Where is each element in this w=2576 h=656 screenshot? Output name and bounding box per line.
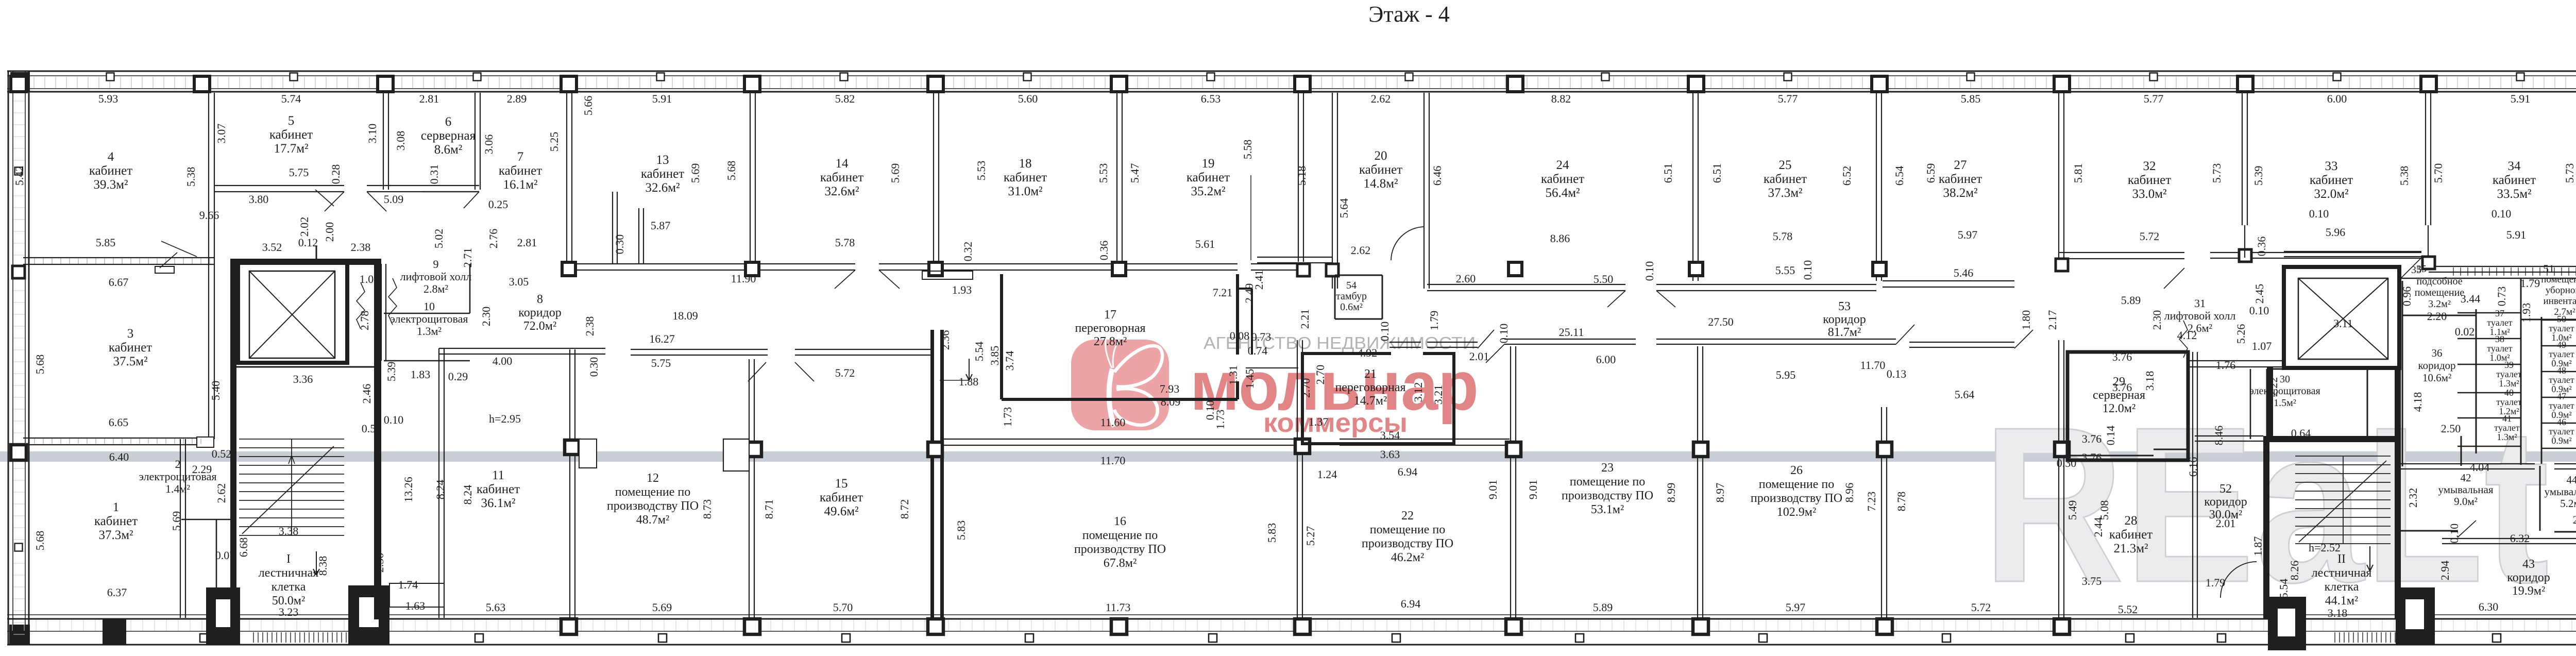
svg-text:5.39: 5.39 <box>385 362 398 382</box>
svg-text:1.3м²: 1.3м² <box>2499 378 2519 389</box>
svg-text:кабинет: кабинет <box>2310 173 2353 187</box>
svg-text:0.9м²: 0.9м² <box>2551 435 2571 446</box>
svg-text:22: 22 <box>1401 509 1414 523</box>
svg-text:клетка: клетка <box>272 580 306 594</box>
svg-text:8.38: 8.38 <box>316 556 329 576</box>
svg-text:1.88: 1.88 <box>959 375 979 388</box>
svg-text:0.96: 0.96 <box>2400 287 2413 307</box>
svg-text:5.77: 5.77 <box>2144 92 2164 105</box>
svg-text:1.73: 1.73 <box>1001 407 1014 427</box>
svg-text:7.21: 7.21 <box>1213 286 1233 299</box>
svg-text:2.17: 2.17 <box>2046 310 2059 330</box>
svg-text:3.2м²: 3.2м² <box>2428 298 2451 310</box>
svg-text:6.54: 6.54 <box>1893 166 1906 186</box>
svg-text:5.55: 5.55 <box>1775 264 1795 277</box>
svg-text:1.79: 1.79 <box>1428 311 1440 331</box>
svg-text:0.51: 0.51 <box>362 422 382 435</box>
svg-text:1.80: 1.80 <box>2020 310 2032 330</box>
svg-text:2.78: 2.78 <box>358 311 371 331</box>
svg-text:37.3м²: 37.3м² <box>98 528 133 542</box>
svg-text:27: 27 <box>1954 158 1967 172</box>
svg-text:кабинет: кабинет <box>820 491 863 504</box>
svg-text:2.30: 2.30 <box>2150 310 2163 330</box>
svg-text:6.00: 6.00 <box>2327 92 2347 105</box>
svg-text:клетка: клетка <box>2325 580 2359 594</box>
svg-text:6.40: 6.40 <box>109 450 129 463</box>
svg-text:33: 33 <box>2325 159 2338 173</box>
svg-text:24: 24 <box>1556 158 1570 172</box>
svg-text:5.69: 5.69 <box>170 511 183 531</box>
svg-text:8.97: 8.97 <box>1714 483 1726 503</box>
svg-text:4.92: 4.92 <box>1358 346 1378 359</box>
svg-text:кабинет: кабинет <box>109 341 152 355</box>
svg-text:2.45: 2.45 <box>2253 284 2266 304</box>
svg-text:лифтовой холл: лифтовой холл <box>400 270 472 283</box>
svg-text:3.12: 3.12 <box>1412 382 1425 402</box>
svg-text:2.81: 2.81 <box>419 92 439 105</box>
svg-text:46: 46 <box>2557 417 2566 427</box>
svg-text:5.02: 5.02 <box>432 229 445 249</box>
svg-text:10: 10 <box>423 300 435 313</box>
svg-text:4: 4 <box>108 150 114 164</box>
svg-text:8.6м²: 8.6м² <box>434 143 463 157</box>
svg-text:0.10: 0.10 <box>2309 207 2329 220</box>
svg-text:2.29: 2.29 <box>192 463 212 476</box>
svg-text:5.53: 5.53 <box>975 161 988 181</box>
svg-text:6.16: 6.16 <box>2187 457 2199 477</box>
svg-text:5.64: 5.64 <box>1955 388 1975 401</box>
svg-text:подсобное: подсобное <box>2416 276 2462 287</box>
svg-text:2.20: 2.20 <box>2427 310 2447 323</box>
svg-text:1.02: 1.02 <box>360 273 380 285</box>
svg-text:3.52: 3.52 <box>262 241 282 254</box>
svg-text:уборного: уборного <box>2546 285 2576 296</box>
svg-text:0.10: 0.10 <box>1497 324 1510 344</box>
svg-text:26: 26 <box>1790 464 1803 477</box>
svg-text:0.32: 0.32 <box>961 242 974 262</box>
svg-text:5.91: 5.91 <box>652 92 672 105</box>
svg-text:0.10: 0.10 <box>2492 207 2512 220</box>
svg-text:11.70: 11.70 <box>1100 454 1126 467</box>
svg-text:33.0м²: 33.0м² <box>2132 187 2166 201</box>
svg-text:умывальная: умывальная <box>2544 485 2576 498</box>
svg-text:лестничная: лестничная <box>259 566 319 580</box>
svg-text:6.52: 6.52 <box>1840 166 1853 186</box>
svg-text:туалет: туалет <box>2549 375 2574 385</box>
svg-text:3.11: 3.11 <box>2333 317 2353 330</box>
svg-text:кабинет: кабинет <box>641 167 684 181</box>
svg-text:2.38: 2.38 <box>583 316 596 337</box>
svg-text:5.95: 5.95 <box>1776 368 1796 381</box>
svg-text:6.59: 6.59 <box>1924 163 1937 183</box>
svg-text:8.24: 8.24 <box>461 485 474 505</box>
svg-text:помещение по: помещение по <box>1370 523 1446 536</box>
svg-text:3.85: 3.85 <box>988 346 1001 366</box>
svg-text:11: 11 <box>492 468 504 482</box>
svg-text:20: 20 <box>1375 149 1387 163</box>
svg-text:53.1м²: 53.1м² <box>1591 503 1624 516</box>
svg-text:туалет: туалет <box>2496 397 2522 407</box>
svg-text:5.70: 5.70 <box>833 601 853 614</box>
svg-text:3.06: 3.06 <box>482 134 495 155</box>
svg-text:туалет: туалет <box>2487 343 2513 354</box>
svg-text:переговорная: переговорная <box>1075 322 1145 335</box>
svg-text:I: I <box>286 552 291 566</box>
svg-text:5.54: 5.54 <box>973 342 986 362</box>
svg-text:3.36: 3.36 <box>293 373 313 385</box>
svg-text:10.6м²: 10.6м² <box>2422 372 2451 384</box>
svg-text:0.31: 0.31 <box>428 164 440 184</box>
svg-text:6.51: 6.51 <box>1662 163 1674 183</box>
svg-text:2.01: 2.01 <box>2216 517 2236 530</box>
svg-text:11.90: 11.90 <box>731 272 756 285</box>
svg-text:0.30: 0.30 <box>613 234 626 255</box>
svg-text:8.72: 8.72 <box>898 499 911 519</box>
svg-text:5.58: 5.58 <box>1241 140 1254 160</box>
svg-text:38: 38 <box>2495 334 2504 344</box>
svg-text:3.76: 3.76 <box>2082 451 2102 464</box>
svg-text:помещение по: помещение по <box>1570 475 1646 489</box>
svg-text:5.09: 5.09 <box>384 193 404 206</box>
svg-text:кабинет: кабинет <box>499 164 542 178</box>
svg-text:0.10: 0.10 <box>2448 524 2461 544</box>
svg-text:5.72: 5.72 <box>835 366 855 379</box>
svg-text:2.36: 2.36 <box>939 330 952 350</box>
svg-text:5.2м²: 5.2м² <box>2560 497 2576 510</box>
svg-text:0.6м²: 0.6м² <box>1340 301 1363 313</box>
svg-text:h=2.52: h=2.52 <box>2309 541 2341 554</box>
svg-text:15: 15 <box>835 477 848 491</box>
svg-text:19: 19 <box>1202 157 1215 171</box>
svg-text:5.46: 5.46 <box>1954 266 1974 279</box>
svg-text:12.0м²: 12.0м² <box>2103 402 2136 415</box>
svg-text:8.82: 8.82 <box>1551 92 1571 105</box>
svg-text:8.78: 8.78 <box>1895 492 1908 512</box>
svg-text:коридор: коридор <box>1823 313 1866 326</box>
svg-text:0.08: 0.08 <box>1230 329 1250 342</box>
svg-text:17: 17 <box>1104 308 1116 322</box>
svg-text:5.69: 5.69 <box>889 163 902 183</box>
svg-text:5.60: 5.60 <box>1018 92 1038 105</box>
svg-text:32.6м²: 32.6м² <box>824 184 859 198</box>
svg-text:3.21: 3.21 <box>1432 385 1445 405</box>
svg-text:56.4м²: 56.4м² <box>1545 186 1580 200</box>
svg-text:1.87: 1.87 <box>2251 536 2264 557</box>
svg-text:38.2м²: 38.2м² <box>1943 186 1977 200</box>
svg-text:0.07: 0.07 <box>215 549 235 562</box>
svg-text:6.51: 6.51 <box>1710 163 1723 183</box>
svg-text:16.27: 16.27 <box>649 332 675 345</box>
svg-text:2.8м²: 2.8м² <box>423 282 448 295</box>
svg-text:5.68: 5.68 <box>725 161 738 181</box>
svg-text:36.1м²: 36.1м² <box>481 496 515 510</box>
svg-text:лифтовой холл: лифтовой холл <box>2164 309 2236 322</box>
svg-text:4.18: 4.18 <box>2411 392 2424 412</box>
svg-text:6.00: 6.00 <box>1596 353 1616 366</box>
svg-text:3.74: 3.74 <box>1003 351 1016 371</box>
svg-text:3.10: 3.10 <box>366 124 379 144</box>
svg-text:кабинет: кабинет <box>1764 172 1807 186</box>
svg-text:6.46: 6.46 <box>1431 166 1444 186</box>
svg-text:туалет: туалет <box>2494 423 2520 433</box>
svg-text:2.41: 2.41 <box>1252 270 1265 290</box>
svg-text:3.76: 3.76 <box>2082 432 2102 445</box>
svg-text:8.86: 8.86 <box>1550 232 1570 245</box>
svg-text:5.75: 5.75 <box>651 357 671 369</box>
svg-text:кабинет: кабинет <box>1187 171 1230 184</box>
svg-text:4.12: 4.12 <box>2177 329 2197 342</box>
svg-text:27.8м²: 27.8м² <box>1094 335 1127 348</box>
svg-text:5.89: 5.89 <box>1593 601 1613 614</box>
svg-text:5.73: 5.73 <box>2563 163 2576 183</box>
svg-text:туалет: туалет <box>2549 349 2574 359</box>
svg-text:4.04: 4.04 <box>2470 461 2490 474</box>
svg-text:8.26: 8.26 <box>2288 561 2301 581</box>
svg-text:5.08: 5.08 <box>2098 500 2111 520</box>
svg-text:кабинет: кабинет <box>1541 172 1584 186</box>
svg-text:0.73: 0.73 <box>1251 330 1272 343</box>
svg-text:50: 50 <box>2557 314 2566 324</box>
svg-text:49: 49 <box>2557 340 2566 350</box>
svg-text:лестничная: лестничная <box>2312 566 2372 580</box>
svg-text:0.52: 0.52 <box>212 447 232 460</box>
svg-text:3.76: 3.76 <box>2112 350 2132 363</box>
svg-text:3.08: 3.08 <box>394 131 407 151</box>
svg-text:0.10: 0.10 <box>384 413 404 426</box>
svg-text:умывальная: умывальная <box>2438 483 2493 496</box>
svg-text:0.10: 0.10 <box>1204 400 1216 420</box>
svg-text:кабинет: кабинет <box>1939 172 1982 186</box>
svg-text:31: 31 <box>2194 297 2206 310</box>
svg-text:II: II <box>2337 552 2346 566</box>
svg-text:3.23: 3.23 <box>279 605 299 618</box>
svg-text:11.70: 11.70 <box>1860 359 1886 372</box>
svg-text:0.10: 0.10 <box>1801 260 1814 280</box>
svg-text:кабинет: кабинет <box>1004 171 1047 184</box>
svg-text:48.7м²: 48.7м² <box>636 513 669 527</box>
svg-text:2.94: 2.94 <box>2438 561 2451 581</box>
svg-text:1.3м²: 1.3м² <box>417 325 442 338</box>
svg-text:электрощитовая: электрощитовая <box>390 312 468 325</box>
svg-text:1.31: 1.31 <box>1227 365 1240 385</box>
svg-text:5.52: 5.52 <box>2118 603 2138 616</box>
svg-text:1.93: 1.93 <box>952 283 972 296</box>
svg-text:9: 9 <box>433 258 439 271</box>
svg-text:кабинет: кабинет <box>820 171 863 184</box>
svg-text:27.50: 27.50 <box>1708 315 1734 328</box>
svg-text:кабинет: кабинет <box>2109 528 2153 542</box>
svg-text:5.38: 5.38 <box>184 167 197 187</box>
svg-text:51: 51 <box>2543 262 2554 275</box>
svg-text:7.93: 7.93 <box>1160 382 1180 395</box>
svg-text:тамбур: тамбур <box>1336 291 1367 302</box>
svg-text:2.32: 2.32 <box>2406 488 2419 508</box>
svg-text:1.24: 1.24 <box>1317 468 1337 481</box>
svg-text:5.26: 5.26 <box>2234 324 2247 344</box>
svg-text:помещение по: помещение по <box>1759 478 1835 491</box>
svg-text:5.68: 5.68 <box>33 355 46 375</box>
svg-text:5.70: 5.70 <box>2432 163 2445 183</box>
svg-text:30: 30 <box>2280 374 2290 385</box>
svg-text:производству ПО: производству ПО <box>1362 537 1453 550</box>
svg-text:1.5м²: 1.5м² <box>2274 397 2296 409</box>
svg-text:0.64: 0.64 <box>2291 427 2311 440</box>
svg-text:1: 1 <box>113 500 120 514</box>
svg-text:2.38: 2.38 <box>351 241 371 254</box>
svg-text:0.10: 0.10 <box>1378 322 1391 342</box>
svg-text:18.09: 18.09 <box>672 309 698 322</box>
svg-text:3.63: 3.63 <box>1380 448 1400 461</box>
svg-text:19.9м²: 19.9м² <box>2512 584 2545 598</box>
svg-text:8.96: 8.96 <box>1843 483 1856 503</box>
svg-text:5.61: 5.61 <box>1195 238 1215 250</box>
svg-text:34: 34 <box>2508 159 2521 173</box>
svg-text:12: 12 <box>647 472 659 485</box>
svg-text:1.07: 1.07 <box>2252 340 2272 352</box>
svg-text:18: 18 <box>1019 157 1032 171</box>
svg-text:2.22: 2.22 <box>2267 377 2280 397</box>
svg-text:6.94: 6.94 <box>1398 465 1418 478</box>
svg-text:5.66: 5.66 <box>582 96 595 116</box>
svg-text:5.83: 5.83 <box>1265 523 1278 543</box>
svg-text:3.05: 3.05 <box>509 275 529 288</box>
svg-text:коридор: коридор <box>2204 495 2247 509</box>
svg-text:81.7м²: 81.7м² <box>1828 326 1861 339</box>
svg-text:5.82: 5.82 <box>835 92 855 105</box>
svg-text:производству ПО: производству ПО <box>607 499 699 513</box>
svg-text:21: 21 <box>1364 367 1377 381</box>
svg-text:17.7м²: 17.7м² <box>274 142 308 156</box>
svg-text:5.72: 5.72 <box>1971 601 1991 614</box>
svg-text:1.83: 1.83 <box>411 368 431 381</box>
svg-text:11.60: 11.60 <box>1100 416 1126 429</box>
svg-text:36: 36 <box>2432 347 2443 359</box>
svg-text:14.7м²: 14.7м² <box>1354 394 1387 408</box>
svg-text:2: 2 <box>175 458 181 470</box>
svg-text:помещение по: помещение по <box>615 485 691 499</box>
svg-text:2.89: 2.89 <box>507 92 527 105</box>
svg-text:9.0м²: 9.0м² <box>2454 495 2478 508</box>
svg-text:2.70: 2.70 <box>1314 365 1327 385</box>
svg-text:коридор: коридор <box>2507 571 2550 584</box>
svg-text:102.9м²: 102.9м² <box>1777 506 1816 519</box>
svg-text:9.01: 9.01 <box>1486 480 1499 500</box>
svg-text:2.71: 2.71 <box>461 248 474 268</box>
svg-text:кабинет: кабинет <box>477 482 520 496</box>
svg-text:5.97: 5.97 <box>1958 228 1978 241</box>
svg-text:туалет: туалет <box>2549 426 2574 436</box>
svg-text:7: 7 <box>517 150 524 164</box>
svg-text:2.62: 2.62 <box>1351 244 1371 257</box>
svg-text:5.40: 5.40 <box>209 381 222 401</box>
svg-text:0.36: 0.36 <box>1097 241 1110 261</box>
svg-text:9.66: 9.66 <box>199 209 219 222</box>
svg-text:5.81: 5.81 <box>2072 163 2084 183</box>
svg-text:3.76: 3.76 <box>2112 381 2132 394</box>
svg-text:6.32: 6.32 <box>2510 532 2530 545</box>
svg-text:5.72: 5.72 <box>2140 230 2160 243</box>
svg-text:3.07: 3.07 <box>215 124 228 144</box>
svg-text:32.0м²: 32.0м² <box>2314 187 2348 201</box>
svg-text:производству ПО: производству ПО <box>1562 489 1653 502</box>
svg-text:5.54: 5.54 <box>2277 579 2290 599</box>
svg-text:0.02: 0.02 <box>2455 325 2475 338</box>
svg-text:кабинет: кабинет <box>269 128 313 142</box>
svg-text:5.73: 5.73 <box>2210 163 2223 183</box>
svg-text:8.24: 8.24 <box>434 480 447 500</box>
svg-text:1.79: 1.79 <box>2520 277 2540 290</box>
svg-text:кабинет: кабинет <box>94 514 138 528</box>
svg-text:6: 6 <box>445 115 452 129</box>
svg-text:14.8м²: 14.8м² <box>1363 177 1398 191</box>
svg-text:37.5м²: 37.5м² <box>113 355 147 368</box>
svg-text:переговорная: переговорная <box>1335 381 1405 394</box>
svg-text:11.73: 11.73 <box>1106 601 1131 614</box>
svg-text:5.53: 5.53 <box>1097 163 1110 183</box>
svg-text:37: 37 <box>2495 308 2504 318</box>
svg-text:1.74: 1.74 <box>398 578 418 591</box>
svg-text:2.00: 2.00 <box>323 222 336 242</box>
svg-text:1.3м²: 1.3м² <box>2497 432 2517 442</box>
svg-text:2.76: 2.76 <box>487 229 500 249</box>
svg-text:h=2.95: h=2.95 <box>489 412 521 425</box>
svg-text:помещение: помещение <box>2415 287 2465 298</box>
svg-text:2.30: 2.30 <box>480 307 493 327</box>
svg-text:21.3м²: 21.3м² <box>2113 542 2148 556</box>
svg-text:5.18: 5.18 <box>1295 166 1308 186</box>
svg-text:кабинет: кабинет <box>1359 163 1402 177</box>
svg-text:5.74: 5.74 <box>281 92 301 105</box>
svg-text:5.63: 5.63 <box>486 601 506 614</box>
svg-text:5.69: 5.69 <box>652 601 672 614</box>
svg-text:серверная: серверная <box>421 129 476 143</box>
svg-text:0.10: 0.10 <box>2249 304 2269 317</box>
svg-text:25.11: 25.11 <box>1559 326 1584 339</box>
svg-text:0.13: 0.13 <box>1887 367 1907 380</box>
svg-text:2.25: 2.25 <box>2573 513 2576 526</box>
svg-text:53: 53 <box>1838 300 1851 313</box>
svg-text:52: 52 <box>2219 482 2232 496</box>
svg-text:33.5м²: 33.5м² <box>2497 187 2531 201</box>
svg-text:2.02: 2.02 <box>298 217 311 237</box>
svg-text:39.3м²: 39.3м² <box>93 178 128 192</box>
svg-text:6.67: 6.67 <box>109 276 129 289</box>
svg-text:3.18: 3.18 <box>2328 607 2348 619</box>
svg-text:0.30: 0.30 <box>587 357 600 377</box>
svg-text:5.69: 5.69 <box>689 163 702 183</box>
svg-text:5.91: 5.91 <box>2506 228 2527 241</box>
svg-text:7.23: 7.23 <box>1865 492 1878 512</box>
svg-text:1.63: 1.63 <box>405 599 426 612</box>
svg-text:кабинет: кабинет <box>2493 173 2536 187</box>
svg-text:5.78: 5.78 <box>835 236 855 249</box>
svg-text:2.30: 2.30 <box>373 553 386 573</box>
svg-text:41: 41 <box>2502 413 2512 424</box>
svg-text:0.73: 0.73 <box>2495 287 2508 307</box>
svg-text:5.97: 5.97 <box>1786 601 1806 614</box>
svg-text:2.81: 2.81 <box>517 236 537 249</box>
svg-text:9.01: 9.01 <box>1527 480 1539 500</box>
svg-text:2.21: 2.21 <box>1298 309 1311 329</box>
svg-text:электрощитовая: электрощитовая <box>2249 385 2320 397</box>
svg-text:Этаж - 4: Этаж - 4 <box>1368 2 1449 27</box>
svg-text:2.46: 2.46 <box>360 384 373 404</box>
svg-text:6.30: 6.30 <box>2479 600 2499 613</box>
svg-text:0.12: 0.12 <box>298 236 318 249</box>
svg-text:инвентаря: инвентаря <box>2543 296 2576 307</box>
svg-text:3.80: 3.80 <box>249 193 269 206</box>
svg-text:2.01: 2.01 <box>1469 350 1489 363</box>
